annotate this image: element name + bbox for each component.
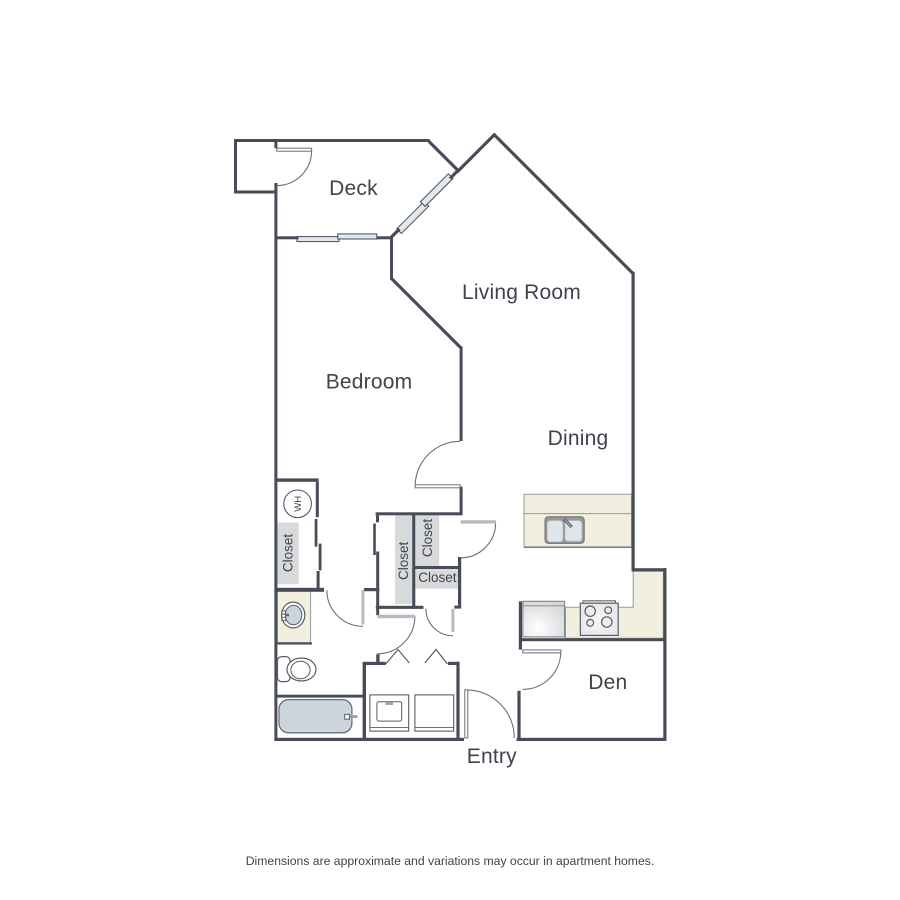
svg-text:Dining: Dining xyxy=(548,427,609,450)
svg-text:Deck: Deck xyxy=(329,177,378,200)
svg-text:Den: Den xyxy=(588,671,627,694)
svg-text:Closet: Closet xyxy=(396,542,411,581)
svg-text:Closet: Closet xyxy=(418,570,457,585)
svg-text:Dimensions are approximate and: Dimensions are approximate and variation… xyxy=(246,854,654,868)
svg-text:Closet: Closet xyxy=(281,534,296,573)
svg-text:Living Room: Living Room xyxy=(462,281,581,304)
svg-text:Closet: Closet xyxy=(420,519,435,558)
svg-text:WH: WH xyxy=(293,496,304,512)
svg-text:Entry: Entry xyxy=(467,745,517,768)
svg-text:Bedroom: Bedroom xyxy=(326,371,413,394)
